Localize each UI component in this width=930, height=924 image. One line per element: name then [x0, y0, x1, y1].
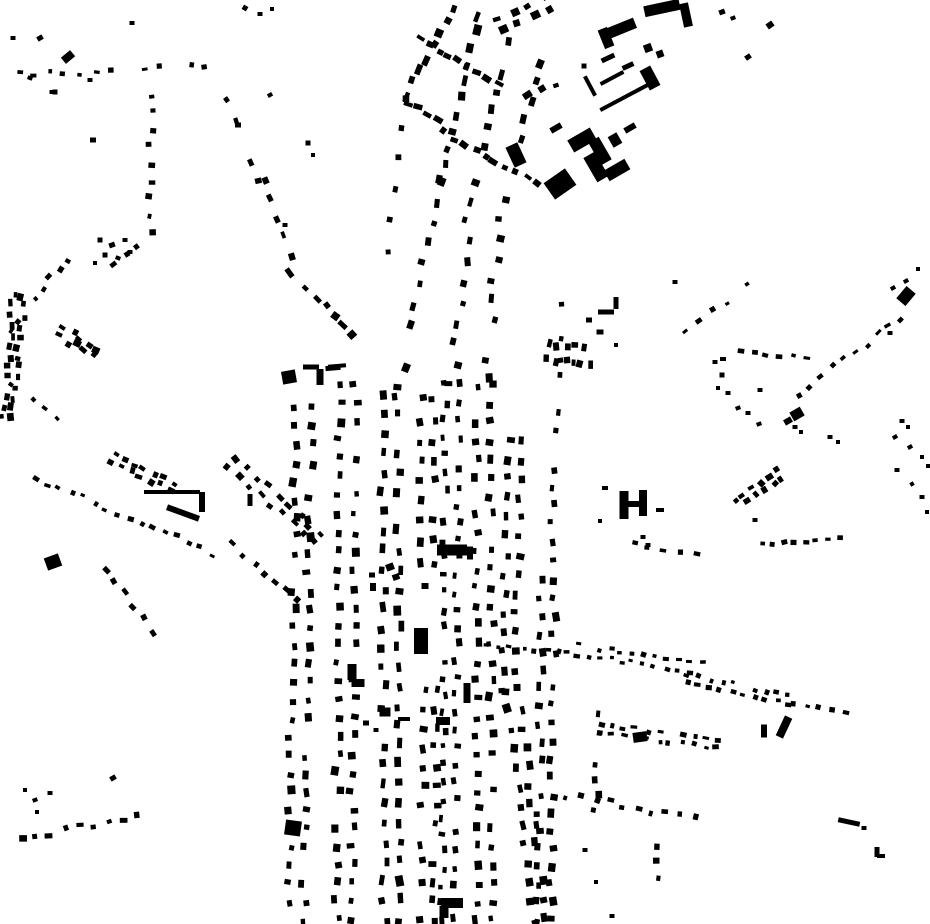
street-buildings-layer [0, 0, 904, 924]
scattered-buildings-layer [11, 5, 930, 918]
figure-ground-map [0, 0, 930, 924]
building-footprint-canvas [0, 0, 930, 924]
